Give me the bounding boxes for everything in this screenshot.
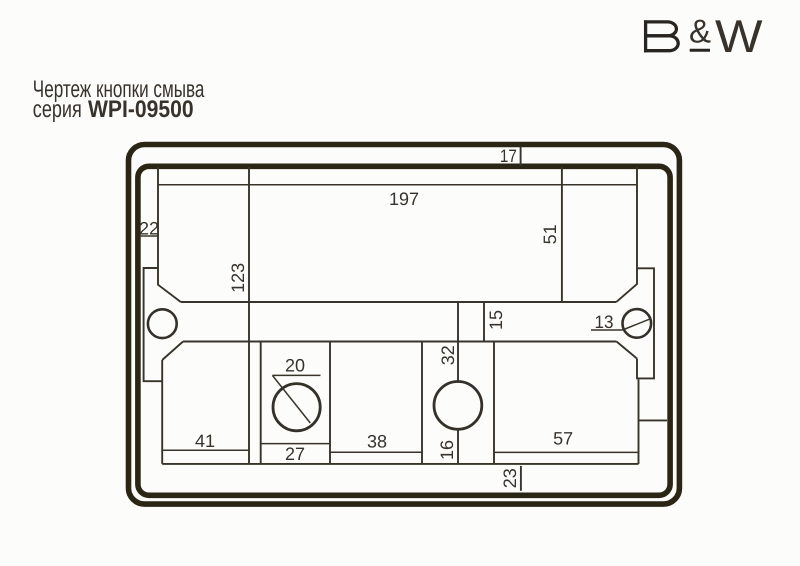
svg-text:41: 41 <box>195 431 215 451</box>
svg-text:WPI-09500: WPI-09500 <box>88 96 194 123</box>
svg-text:13: 13 <box>595 312 614 332</box>
svg-text:23: 23 <box>500 468 520 488</box>
svg-text:22: 22 <box>139 219 159 239</box>
svg-text:123: 123 <box>228 263 248 293</box>
svg-text:51: 51 <box>540 224 560 244</box>
svg-text:197: 197 <box>389 189 419 209</box>
svg-text:15: 15 <box>486 310 506 330</box>
svg-text:32: 32 <box>438 345 458 365</box>
svg-text:W: W <box>715 10 763 62</box>
svg-text:27: 27 <box>285 444 305 464</box>
svg-text:57: 57 <box>553 428 573 448</box>
svg-text:20: 20 <box>285 356 305 376</box>
svg-text:серия: серия <box>33 96 82 123</box>
svg-text:38: 38 <box>367 432 387 452</box>
svg-text:&: & <box>689 12 711 49</box>
svg-text:17: 17 <box>500 146 517 166</box>
svg-text:16: 16 <box>437 440 457 460</box>
